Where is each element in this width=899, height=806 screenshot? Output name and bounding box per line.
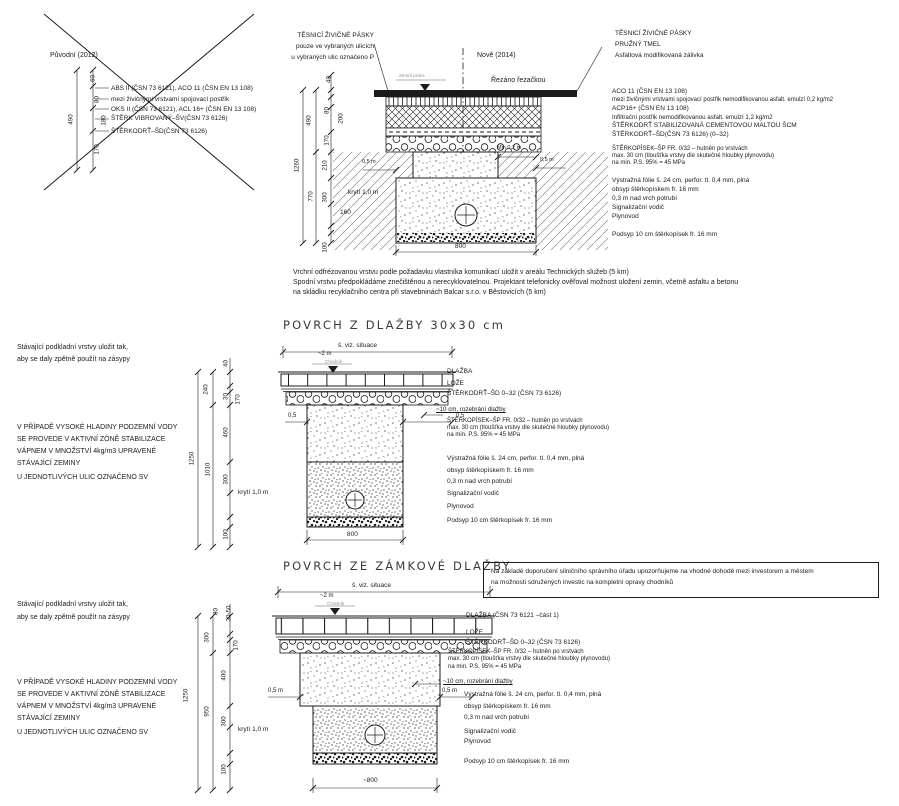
level-note: Zemní práce bbox=[399, 72, 425, 81]
sealing-head-line: Asfaltová modifikovaná zálivka bbox=[615, 52, 704, 61]
layer-label: Signalizační vodič bbox=[612, 204, 664, 213]
sealing-head-line: TĚSNICÍ ŽIVIČNÉ PÁSKY bbox=[615, 30, 692, 39]
layer-label: Podsyp 10 cm štěrkopísek fr. 16 mm bbox=[447, 517, 552, 526]
water-note-line: STÁVAJÍCÍ ZEMINY bbox=[17, 460, 80, 469]
dim-label: 460 bbox=[223, 413, 230, 453]
new-detail-linework bbox=[300, 44, 608, 256]
dim-label: 1250 bbox=[189, 439, 196, 479]
new-detail-title: Nově (2014) bbox=[477, 52, 516, 61]
layer-label: 0,3 m nad vrch potrubí bbox=[447, 478, 512, 487]
layer-label: LOŽE bbox=[447, 380, 464, 389]
dim-label: 300 bbox=[221, 702, 228, 742]
dim-label: 400 bbox=[221, 656, 228, 696]
dim-label: 170 bbox=[235, 380, 242, 420]
old-layer-label: mezi živičnými vrstvami spojovací postři… bbox=[111, 96, 229, 105]
dim-label: 770 bbox=[308, 177, 315, 217]
advice-box-line: na možnosti sdružených investic na kompl… bbox=[491, 579, 673, 588]
level-note: Chodník bbox=[327, 600, 344, 609]
trench-width-label: ~800 bbox=[363, 777, 378, 786]
old-layer-label: ŠTĚRKODRŤ–ŠD(ČSN 73 6126) bbox=[111, 128, 207, 137]
dim-label: 0,5 m bbox=[442, 688, 457, 696]
reuse-note-line: aby se daly zpětně použít na zásypy bbox=[17, 614, 130, 623]
footnote-line: na skládku recyklačního centra při stave… bbox=[293, 289, 546, 298]
old-layer-label: ABS II (ČSN 73 6121), ACO 11 (ČSN EN 13 … bbox=[111, 85, 253, 94]
sv-note: U JEDNOTLIVÝCH ULIC OZNAČENO SV bbox=[17, 729, 148, 738]
layer-label: obsyp štěrkopískem fr. 16 mm bbox=[464, 703, 551, 712]
layer-label: ŠTĚRKODRŤ STABILIZOVANÁ CEMENTOVOU MALTO… bbox=[612, 122, 797, 131]
advice-box-line: Na základě doporučení silničního správní… bbox=[491, 568, 814, 577]
dim-label: 240 bbox=[203, 370, 210, 410]
dim-label: 0,5 m bbox=[362, 158, 376, 167]
dim-label: 1010 bbox=[205, 450, 212, 490]
layer-label: Plynovod bbox=[612, 213, 639, 222]
dim-label: 1260 bbox=[294, 146, 301, 186]
layer-label: ACO 11 (ČSN EN 13 108) bbox=[612, 88, 687, 97]
layer-label: na min. P.S. 95% = 45 MPa bbox=[448, 664, 521, 672]
footnote-line: Vrchní odfrézovanou vrstvu podle požadav… bbox=[293, 269, 629, 278]
dim-label: 30 bbox=[223, 377, 230, 417]
level-note: Chodník bbox=[325, 358, 342, 367]
width-ref-label: š. viz. situace bbox=[352, 582, 391, 591]
cover-depth-label: krytí 1,0 m bbox=[348, 189, 378, 198]
tape-note-line: TĚSNICÍ ŽIVIČNÉ PÁSKY bbox=[224, 32, 374, 41]
dim-label: 30-50 bbox=[226, 594, 233, 634]
tape-note-line: pouze ve vybraných ulicích bbox=[224, 43, 374, 52]
layer-label: ŠTĚRKODRŤ–ŠD 0–32 (ČSN 73 6126) bbox=[447, 390, 561, 399]
dismantle-label: ~10 cm, rozebrání dlažby bbox=[436, 406, 506, 415]
sv-note: U JEDNOTLIVÝCH ULIC OZNAČENO SV bbox=[17, 474, 148, 483]
old-layer-label: OKS II (ČSN 73 6121), ACL 16+ (ČSN EN 13… bbox=[111, 106, 256, 115]
dim-label: 100 bbox=[322, 228, 329, 268]
layer-label: Signalizační vodič bbox=[464, 728, 516, 737]
dim-label: 0,5 m bbox=[268, 688, 283, 696]
layer-label: DLAŽBA (ČSN 73 6121 –část 1) bbox=[466, 612, 559, 621]
dim-label: 0,5 bbox=[288, 413, 296, 421]
reuse-note-line: aby se daly zpětně použít na zásypy bbox=[17, 356, 130, 365]
layer-label: 0,3 m nad vrch potrubí bbox=[464, 714, 529, 723]
trench-width-label: 800 bbox=[455, 243, 466, 252]
water-note-line: VÁPNEM V MNOŽSTVÍ 4kg/m3 UPRAVENÉ bbox=[17, 703, 156, 712]
layer-label: na min. P.S. 95% = 45 MPa bbox=[447, 432, 520, 440]
layer-label: Podsyp 10 cm štěrkopísek fr. 16 mm bbox=[464, 758, 569, 767]
layer-label: ŠTĚRKODRŤ–ŠD(ČSN 73 6126) (0–32) bbox=[612, 131, 729, 140]
dim-label: 490 bbox=[68, 100, 75, 140]
water-note-line: STÁVAJÍCÍ ZEMINY bbox=[17, 715, 80, 724]
dim-label: Min 0,2 m bbox=[497, 144, 521, 153]
technical-drawing-sheet: Původní (2012) ABS II (ČSN 73 6121), ACO… bbox=[0, 0, 899, 806]
dim-label: 0,5 m bbox=[540, 156, 554, 165]
layer-label: obsyp štěrkopískem fr. 16 mm bbox=[612, 186, 699, 195]
tape-note-line: u vybraných ulic označeno P bbox=[224, 54, 374, 63]
water-note-line: SE PROVEDE V AKTIVNÍ ZÓNĚ STABILIZACE bbox=[17, 436, 165, 445]
dim-label: 100 bbox=[223, 515, 230, 555]
dismantle-label: ~10 cm, rozebrání dlažby bbox=[443, 678, 513, 687]
s2-linework bbox=[195, 346, 456, 550]
dim-label: 100 bbox=[221, 750, 228, 790]
layer-label: Výstražná fólie š. 24 cm, perfor. tl. 0,… bbox=[612, 177, 749, 186]
layer-label: Výstražná fólie š. 24 cm, perfor. tl. 0,… bbox=[447, 455, 584, 464]
reuse-note-line: Stávající podkladní vrstvy uložit tak, bbox=[17, 601, 128, 610]
width-ref-label: š. viz. situace bbox=[338, 342, 377, 351]
dim-label: 300 bbox=[223, 460, 230, 500]
layer-label: 0,3 m nad vrch potrubí bbox=[612, 195, 677, 204]
old-layer-label: ŠTĚRK VIBROVANÝ–ŠV(ČSN 73 6126) bbox=[111, 115, 228, 124]
dim-label: 200 bbox=[338, 99, 345, 139]
dim-label: 300 bbox=[322, 178, 329, 218]
dim-label: 300 bbox=[204, 618, 211, 658]
dim-label: 180 bbox=[101, 101, 108, 141]
layer-label: ACP16+ (ČSN EN 13 108) bbox=[612, 105, 689, 114]
layer-label: obsyp štěrkopískem fr. 16 mm bbox=[447, 467, 534, 476]
cover-depth-label: krytí 1,0 m bbox=[238, 489, 268, 498]
dim-label: 170 bbox=[94, 130, 101, 170]
layer-label: Signalizační vodič bbox=[447, 490, 499, 499]
layer-label: na min. P.S. 95% = 45 MPa bbox=[612, 160, 685, 168]
dim-label: 950 bbox=[204, 692, 211, 732]
footnote-line: Spodní vrstvu předpokládáme znečištěnou … bbox=[293, 279, 738, 288]
sealing-head-line: PRUŽNÝ TMEL bbox=[615, 41, 661, 50]
layer-label: DLAŽBA bbox=[447, 368, 472, 377]
layer-label: mezi živičnými vrstvami spojovací postři… bbox=[612, 97, 833, 105]
layer-label: LOŽE bbox=[466, 629, 483, 638]
layer-label: ŠTĚRKODRŤ–ŠD 0–32 (ČSN 73 6126) bbox=[466, 639, 580, 648]
s2-title: POVRCH Z DLAŽBY 30x30 cm bbox=[283, 318, 505, 332]
cover-depth-label: krytí 1,0 m bbox=[238, 726, 268, 735]
dim-label: 490 bbox=[306, 101, 313, 141]
trench-width-label: 800 bbox=[347, 531, 358, 540]
layer-label: Plynovod bbox=[464, 738, 491, 747]
cut-note: Řezáno řezačkou bbox=[491, 77, 545, 86]
dim-label: 80 bbox=[213, 592, 220, 632]
dim-label: 0,5 bbox=[456, 413, 464, 421]
layer-label: Výstražná fólie š. 24 cm, perfor. tl. 0,… bbox=[464, 691, 601, 700]
water-note-line: SE PROVEDE V AKTIVNÍ ZÓNĚ STABILIZACE bbox=[17, 691, 165, 700]
dim-label: 170 bbox=[233, 626, 240, 666]
s3-title: POVRCH ZE ZÁMKOVÉ DLAŽBY bbox=[283, 559, 512, 573]
water-note-line: V PŘÍPADĚ VYSOKÉ HLADINY PODZEMNÍ VODY bbox=[17, 424, 177, 433]
layer-label: max. 30 cm (tloušťka vrstvy dle skutečné… bbox=[448, 656, 610, 664]
dim-label: 80 bbox=[94, 80, 101, 120]
water-note-line: VÁPNEM V MNOŽSTVÍ 4kg/m3 UPRAVENÉ bbox=[17, 448, 156, 457]
reuse-note-line: Stávající podkladní vrstvy uložit tak, bbox=[17, 344, 128, 353]
dim-label: 1250 bbox=[183, 676, 190, 716]
layer-label: Plynovod bbox=[447, 503, 474, 512]
pipe-diameter-label: 160 bbox=[340, 209, 351, 218]
layer-label: Podsyp 10 cm štěrkopísek fr. 16 mm bbox=[612, 231, 717, 240]
water-note-line: V PŘÍPADĚ VYSOKÉ HLADINY PODZEMNÍ VODY bbox=[17, 679, 177, 688]
